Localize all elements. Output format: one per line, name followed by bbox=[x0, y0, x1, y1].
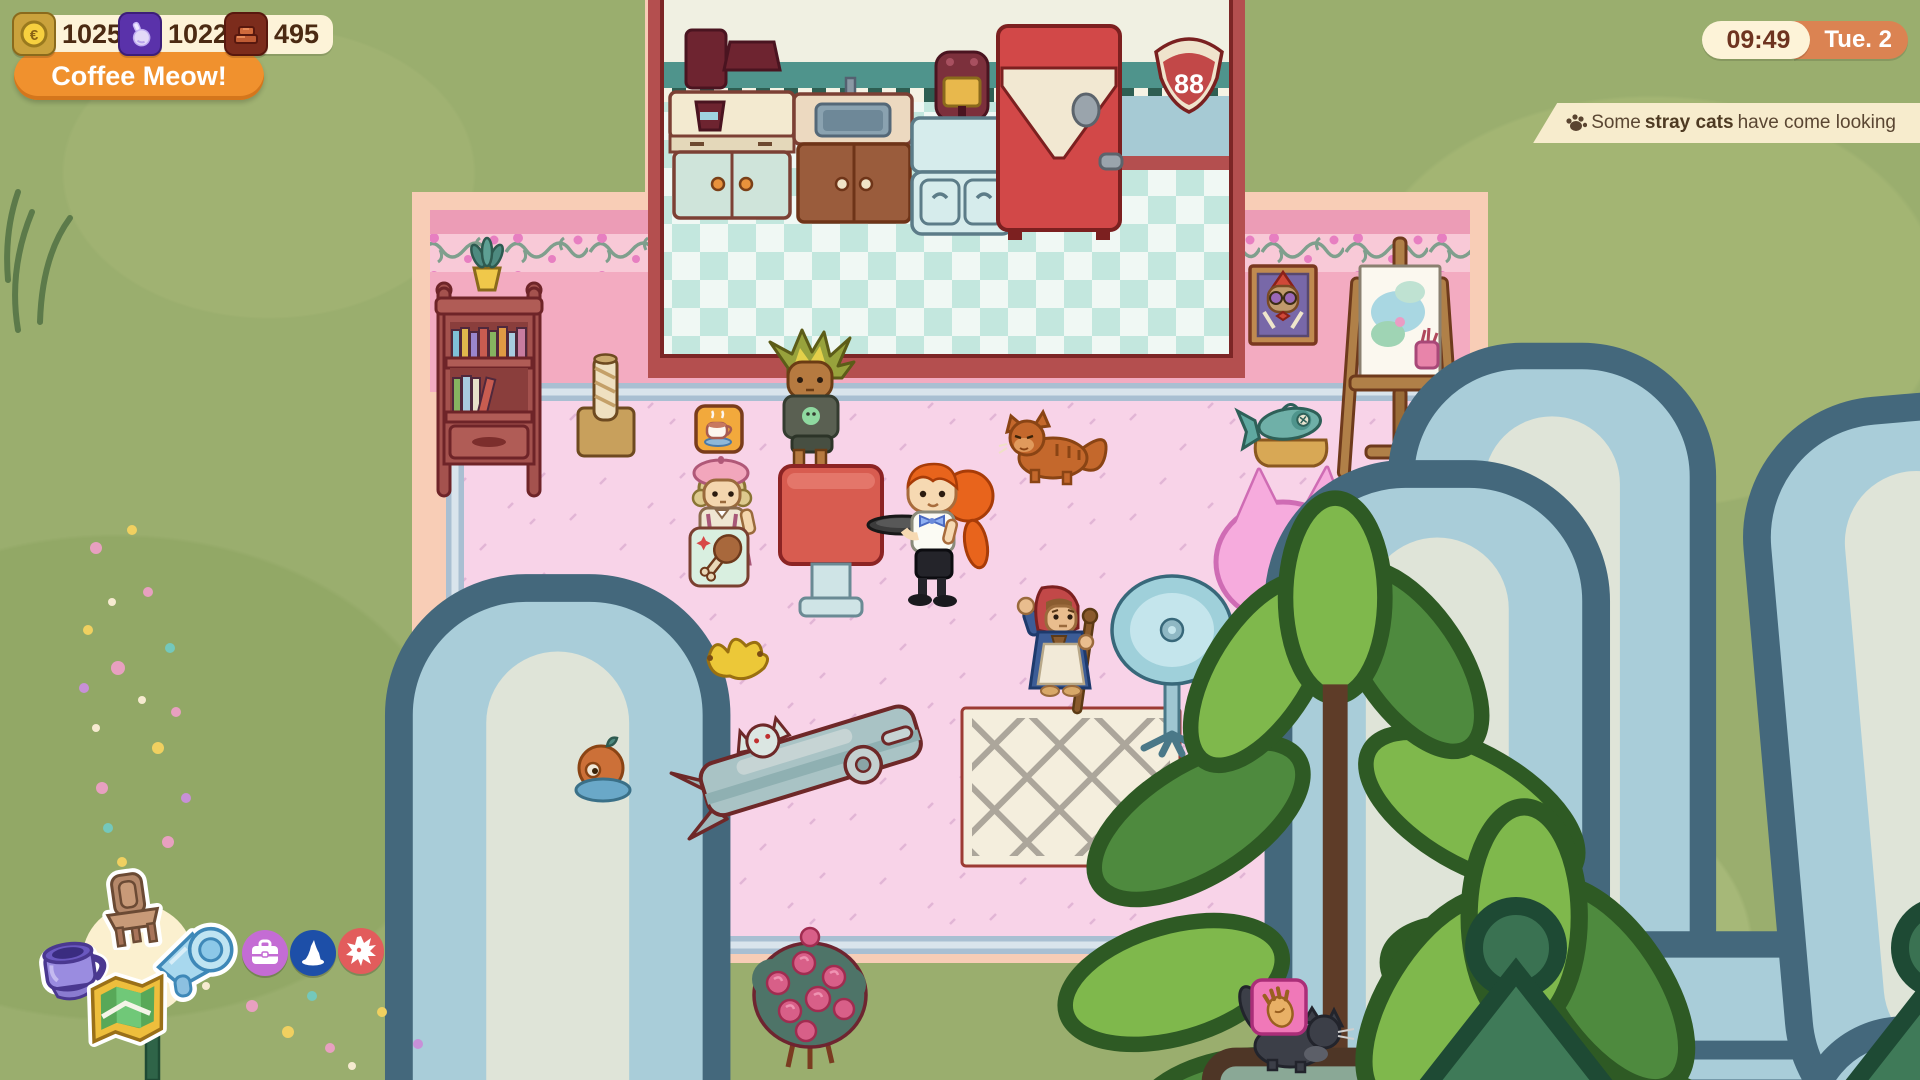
coffee-sign[interactable] bbox=[696, 406, 742, 452]
notification-text-highlight: stray cats bbox=[1645, 112, 1734, 134]
paw-icon bbox=[1565, 113, 1587, 133]
witch-hat-icon bbox=[298, 938, 328, 968]
potion-icon bbox=[118, 12, 162, 56]
grass-blades bbox=[7, 192, 70, 330]
brush-cup bbox=[1416, 342, 1438, 368]
notification-text-prefix: Some bbox=[1591, 112, 1641, 134]
notification-banner[interactable]: Some stray cats have come looking bbox=[1521, 103, 1920, 143]
clock-widget: 09:49 Tue. 2 bbox=[1702, 21, 1908, 59]
plant-pot bbox=[474, 268, 500, 290]
briefcase-icon bbox=[250, 939, 280, 967]
clock-time: 09:49 bbox=[1702, 21, 1810, 59]
route-sign-number: 88 bbox=[1174, 69, 1204, 99]
cafe-name-button[interactable]: Coffee Meow! bbox=[14, 52, 264, 100]
coin-icon: € bbox=[12, 12, 56, 56]
game-viewport: 88 bbox=[0, 0, 1920, 1080]
clock-day: Tue. 2 bbox=[1794, 21, 1908, 59]
pet-action-badge[interactable] bbox=[1252, 980, 1306, 1034]
notification-text-suffix: have come looking bbox=[1738, 112, 1896, 134]
books-row bbox=[452, 327, 526, 360]
action-menu bbox=[20, 866, 440, 1080]
map-icon[interactable] bbox=[86, 971, 170, 1051]
alert-burst-button[interactable] bbox=[338, 928, 384, 974]
svg-text:€: € bbox=[30, 27, 39, 44]
brick-icon bbox=[224, 12, 268, 56]
witch-hat-button[interactable] bbox=[290, 930, 336, 976]
cat-portrait[interactable] bbox=[1250, 266, 1316, 344]
books-row bbox=[453, 376, 495, 415]
order-bubble bbox=[690, 528, 748, 586]
resource-bricks: 495 bbox=[224, 14, 333, 54]
coffee-machine-station[interactable] bbox=[670, 30, 794, 218]
fridge[interactable] bbox=[998, 26, 1122, 240]
banana-peel[interactable] bbox=[707, 639, 768, 678]
briefcase-button[interactable] bbox=[242, 930, 288, 976]
burst-icon bbox=[345, 935, 377, 967]
sink-station[interactable] bbox=[794, 78, 912, 222]
